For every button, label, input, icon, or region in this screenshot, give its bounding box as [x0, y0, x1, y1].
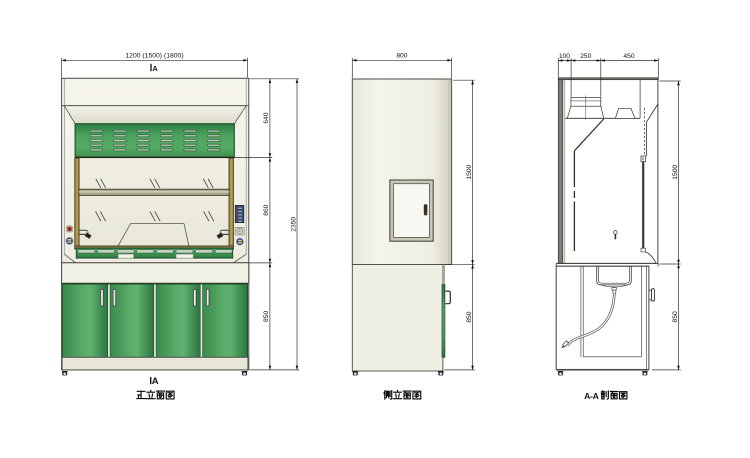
svg-text:1200 (1500) (1800): 1200 (1500) (1800): [125, 53, 183, 60]
svg-text:250: 250: [580, 53, 591, 60]
svg-text:1500: 1500: [466, 164, 473, 179]
svg-text:2350: 2350: [290, 217, 297, 232]
svg-text:860: 860: [263, 204, 270, 215]
svg-text:850: 850: [263, 311, 270, 322]
svg-text:1500: 1500: [672, 165, 679, 180]
svg-text:450: 450: [623, 53, 634, 60]
svg-text:A: A: [152, 376, 159, 387]
svg-text:850: 850: [466, 311, 473, 322]
svg-text:100: 100: [559, 53, 570, 60]
svg-text:850: 850: [672, 311, 679, 322]
svg-text:800: 800: [396, 53, 407, 60]
svg-text:640: 640: [263, 112, 270, 123]
svg-text:A: A: [152, 64, 158, 73]
svg-text:A-A: A-A: [584, 391, 598, 401]
